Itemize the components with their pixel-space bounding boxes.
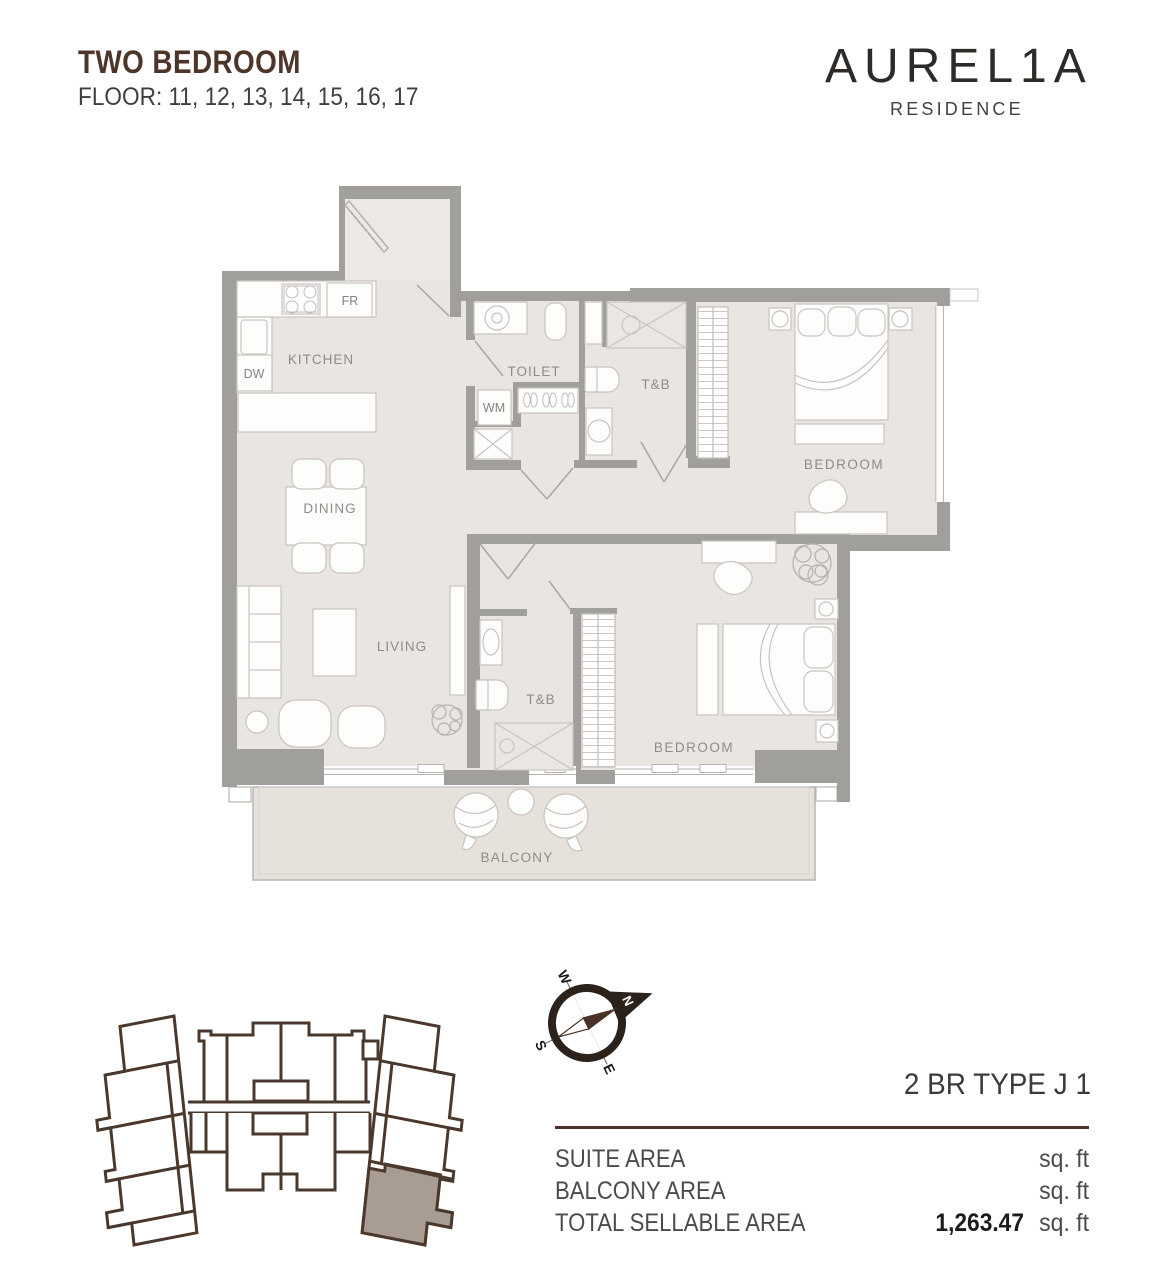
svg-text:BEDROOM: BEDROOM xyxy=(654,740,734,755)
svg-text:BALCONY: BALCONY xyxy=(481,850,554,865)
svg-text:FR: FR xyxy=(342,294,359,308)
svg-text:DINING: DINING xyxy=(303,501,356,516)
svg-text:KITCHEN: KITCHEN xyxy=(288,352,354,367)
svg-text:TOILET: TOILET xyxy=(507,364,560,379)
svg-text:LIVING: LIVING xyxy=(377,639,427,654)
svg-text:W: W xyxy=(555,968,576,988)
svg-text:T&B: T&B xyxy=(641,377,670,392)
svg-text:T&B: T&B xyxy=(526,692,555,707)
svg-text:BEDROOM: BEDROOM xyxy=(804,457,884,472)
svg-text:DW: DW xyxy=(244,367,265,381)
svg-text:E: E xyxy=(600,1061,618,1076)
svg-text:WM: WM xyxy=(483,401,505,415)
svg-text:S: S xyxy=(532,1038,550,1053)
